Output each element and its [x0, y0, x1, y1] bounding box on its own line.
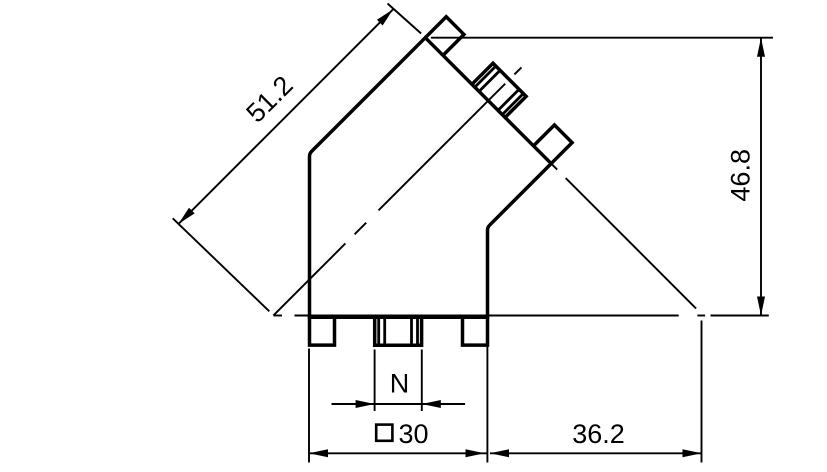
svg-text:N: N: [390, 368, 410, 398]
svg-text:46.8: 46.8: [726, 149, 756, 202]
svg-text:36.2: 36.2: [572, 419, 625, 449]
svg-text:30: 30: [398, 419, 428, 449]
